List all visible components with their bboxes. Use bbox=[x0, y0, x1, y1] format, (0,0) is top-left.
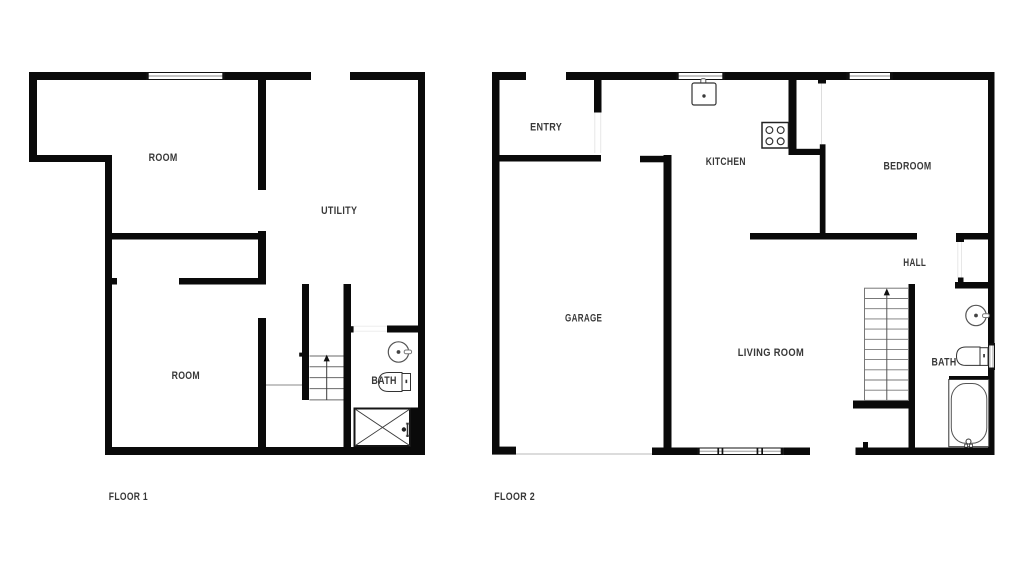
svg-text:FLOOR 2: FLOOR 2 bbox=[494, 491, 535, 503]
svg-text:FLOOR 1: FLOOR 1 bbox=[109, 491, 148, 503]
svg-text:BATH: BATH bbox=[932, 357, 957, 369]
svg-text:UTILITY: UTILITY bbox=[321, 205, 357, 217]
svg-text:ROOM: ROOM bbox=[172, 370, 200, 382]
svg-text:GARAGE: GARAGE bbox=[565, 313, 602, 325]
svg-text:BEDROOM: BEDROOM bbox=[883, 161, 931, 173]
svg-text:BATH: BATH bbox=[371, 375, 396, 387]
svg-text:ENTRY: ENTRY bbox=[530, 122, 562, 134]
svg-text:KITCHEN: KITCHEN bbox=[706, 156, 746, 168]
svg-text:ROOM: ROOM bbox=[149, 152, 178, 164]
svg-text:LIVING ROOM: LIVING ROOM bbox=[738, 347, 804, 359]
svg-text:HALL: HALL bbox=[903, 257, 926, 269]
